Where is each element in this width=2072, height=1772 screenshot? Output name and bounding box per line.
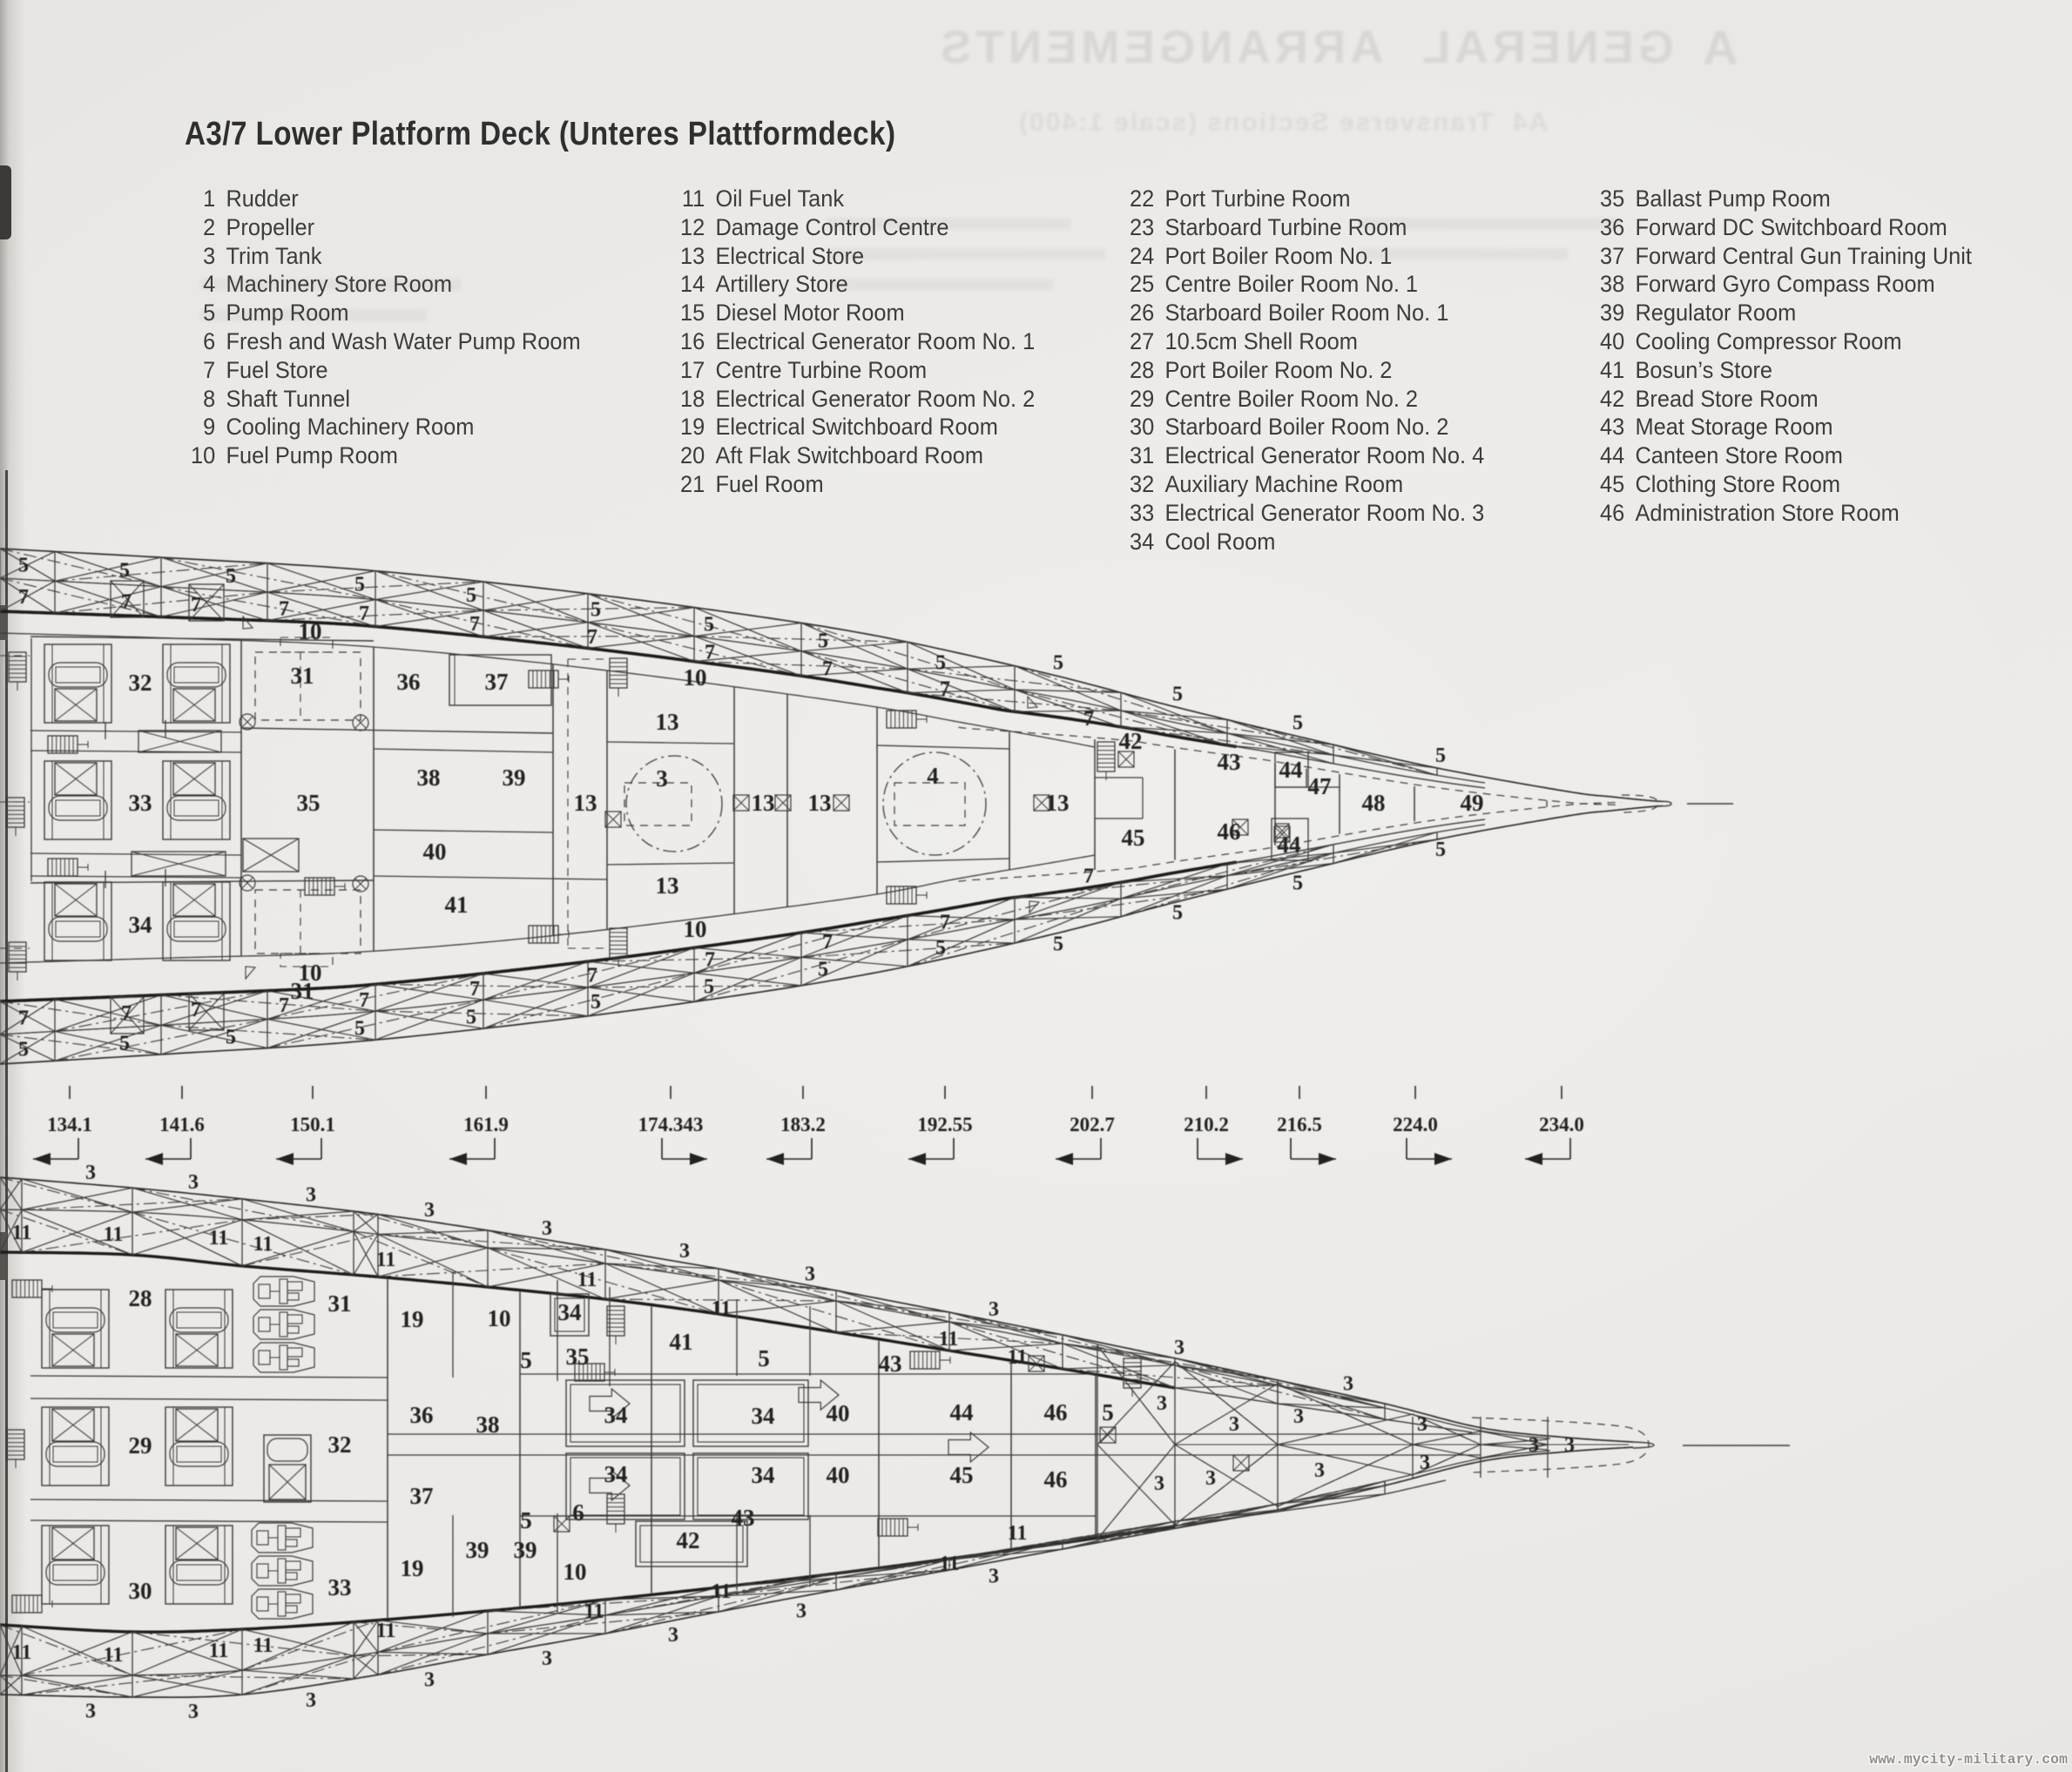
svg-text:10: 10 xyxy=(684,664,707,691)
svg-text:19: 19 xyxy=(401,1306,424,1332)
svg-text:11: 11 xyxy=(104,1223,124,1246)
svg-text:7: 7 xyxy=(940,912,950,934)
svg-text:37: 37 xyxy=(410,1483,434,1509)
svg-text:32: 32 xyxy=(328,1432,352,1458)
svg-text:202.7: 202.7 xyxy=(1070,1114,1115,1135)
svg-text:3: 3 xyxy=(1314,1459,1325,1482)
svg-text:3: 3 xyxy=(1417,1413,1427,1436)
svg-text:31: 31 xyxy=(291,663,314,689)
svg-text:3: 3 xyxy=(1154,1472,1164,1495)
svg-text:40: 40 xyxy=(827,1400,850,1426)
svg-text:7: 7 xyxy=(279,597,289,620)
svg-text:11: 11 xyxy=(253,1233,273,1256)
svg-text:11: 11 xyxy=(104,1644,124,1667)
svg-text:11: 11 xyxy=(376,1620,396,1642)
svg-text:3: 3 xyxy=(1420,1452,1430,1474)
svg-text:5: 5 xyxy=(466,584,476,607)
svg-text:3: 3 xyxy=(1157,1392,1167,1415)
svg-text:216.5: 216.5 xyxy=(1277,1114,1322,1135)
svg-text:28: 28 xyxy=(129,1285,152,1311)
svg-text:6: 6 xyxy=(572,1499,584,1526)
svg-text:43: 43 xyxy=(879,1351,902,1377)
svg-text:234.0: 234.0 xyxy=(1539,1114,1584,1135)
svg-text:47: 47 xyxy=(1308,773,1332,799)
svg-text:161.9: 161.9 xyxy=(463,1114,509,1135)
svg-text:34: 34 xyxy=(558,1299,582,1325)
svg-text:5: 5 xyxy=(18,1038,29,1061)
svg-text:5: 5 xyxy=(1435,839,1446,861)
svg-text:7: 7 xyxy=(279,994,289,1017)
svg-text:5: 5 xyxy=(18,554,29,576)
svg-text:5: 5 xyxy=(818,959,828,981)
svg-text:39: 39 xyxy=(514,1537,537,1563)
svg-text:41: 41 xyxy=(445,892,469,918)
svg-text:5: 5 xyxy=(1292,712,1303,735)
svg-text:11: 11 xyxy=(712,1297,732,1320)
svg-text:36: 36 xyxy=(410,1402,434,1428)
svg-text:7: 7 xyxy=(940,678,950,701)
svg-text:7: 7 xyxy=(587,964,597,987)
svg-text:11: 11 xyxy=(376,1249,396,1271)
svg-text:11: 11 xyxy=(1008,1346,1028,1369)
svg-text:35: 35 xyxy=(297,790,321,816)
svg-text:36: 36 xyxy=(397,669,421,695)
svg-text:42: 42 xyxy=(1119,728,1143,754)
svg-text:134.1: 134.1 xyxy=(47,1114,92,1135)
svg-text:7: 7 xyxy=(18,1007,29,1030)
svg-text:13: 13 xyxy=(656,709,679,735)
svg-text:11: 11 xyxy=(940,1553,960,1575)
svg-text:5: 5 xyxy=(520,1507,532,1533)
svg-text:10: 10 xyxy=(564,1559,587,1585)
svg-text:37: 37 xyxy=(485,669,509,695)
svg-text:5: 5 xyxy=(1053,933,1063,955)
svg-text:13: 13 xyxy=(574,790,597,816)
svg-text:7: 7 xyxy=(822,658,833,681)
svg-text:33: 33 xyxy=(328,1574,352,1600)
svg-text:7: 7 xyxy=(705,642,715,664)
svg-text:33: 33 xyxy=(129,790,152,816)
svg-text:3: 3 xyxy=(796,1600,807,1622)
svg-text:11: 11 xyxy=(209,1640,229,1662)
svg-text:3: 3 xyxy=(85,1701,96,1723)
svg-text:46: 46 xyxy=(1044,1399,1068,1425)
svg-text:5: 5 xyxy=(1435,745,1446,767)
svg-text:45: 45 xyxy=(950,1462,974,1488)
svg-text:5: 5 xyxy=(1172,684,1183,706)
svg-text:3: 3 xyxy=(542,1647,552,1670)
svg-text:10: 10 xyxy=(488,1305,511,1331)
svg-text:7: 7 xyxy=(191,999,201,1021)
svg-text:32: 32 xyxy=(129,670,152,696)
svg-text:5: 5 xyxy=(1102,1399,1114,1425)
svg-text:13: 13 xyxy=(752,790,775,816)
svg-text:44: 44 xyxy=(1278,832,1301,858)
svg-text:3: 3 xyxy=(188,1171,199,1194)
svg-text:3: 3 xyxy=(1343,1373,1353,1396)
svg-text:3: 3 xyxy=(1529,1434,1539,1457)
svg-text:39: 39 xyxy=(466,1537,489,1563)
svg-text:38: 38 xyxy=(476,1412,500,1438)
svg-text:5: 5 xyxy=(520,1347,532,1373)
svg-text:10: 10 xyxy=(299,618,322,644)
svg-text:43: 43 xyxy=(1218,749,1241,775)
svg-text:3: 3 xyxy=(668,1624,678,1647)
svg-text:3: 3 xyxy=(188,1701,199,1723)
svg-text:7: 7 xyxy=(359,603,369,625)
svg-text:34: 34 xyxy=(604,1402,628,1428)
svg-text:7: 7 xyxy=(587,626,597,649)
svg-text:210.2: 210.2 xyxy=(1184,1114,1229,1135)
svg-text:13: 13 xyxy=(656,873,679,899)
svg-text:3: 3 xyxy=(1229,1413,1239,1436)
svg-text:11: 11 xyxy=(12,1222,32,1244)
svg-text:192.55: 192.55 xyxy=(917,1114,972,1135)
svg-text:5: 5 xyxy=(226,1027,236,1049)
svg-text:4: 4 xyxy=(927,763,939,789)
svg-text:3: 3 xyxy=(1205,1467,1216,1490)
svg-text:5: 5 xyxy=(354,574,365,596)
svg-text:5: 5 xyxy=(704,613,714,636)
svg-text:41: 41 xyxy=(670,1329,693,1355)
svg-text:31: 31 xyxy=(328,1290,352,1317)
svg-text:5: 5 xyxy=(1053,652,1063,675)
svg-text:5: 5 xyxy=(354,1017,365,1040)
svg-text:10: 10 xyxy=(299,960,322,986)
svg-text:11: 11 xyxy=(1008,1522,1028,1545)
svg-text:44: 44 xyxy=(950,1399,974,1425)
svg-text:3: 3 xyxy=(805,1263,815,1285)
svg-text:38: 38 xyxy=(417,765,441,791)
svg-text:30: 30 xyxy=(129,1578,152,1604)
svg-text:11: 11 xyxy=(209,1227,229,1250)
svg-text:7: 7 xyxy=(121,1002,132,1025)
svg-text:5: 5 xyxy=(466,1006,476,1028)
svg-text:40: 40 xyxy=(423,839,447,865)
svg-text:5: 5 xyxy=(1172,902,1183,925)
svg-text:7: 7 xyxy=(359,989,369,1012)
svg-text:46: 46 xyxy=(1044,1466,1068,1492)
svg-text:5: 5 xyxy=(119,1033,130,1055)
svg-text:3: 3 xyxy=(306,1183,316,1206)
svg-text:7: 7 xyxy=(191,594,201,616)
svg-text:40: 40 xyxy=(827,1462,850,1488)
svg-text:3: 3 xyxy=(656,765,668,792)
svg-text:7: 7 xyxy=(469,978,480,1001)
svg-text:45: 45 xyxy=(1122,825,1145,851)
svg-text:13: 13 xyxy=(1046,790,1070,816)
svg-text:7: 7 xyxy=(1083,865,1094,887)
svg-text:34: 34 xyxy=(604,1461,628,1487)
svg-text:3: 3 xyxy=(1174,1337,1184,1359)
svg-text:7: 7 xyxy=(822,932,833,954)
svg-text:10: 10 xyxy=(684,916,707,942)
svg-text:3: 3 xyxy=(424,1199,435,1222)
svg-text:7: 7 xyxy=(18,586,29,609)
svg-text:5: 5 xyxy=(591,991,601,1014)
svg-text:5: 5 xyxy=(818,630,828,653)
svg-text:150.1: 150.1 xyxy=(290,1114,335,1135)
svg-text:42: 42 xyxy=(677,1527,700,1553)
svg-text:43: 43 xyxy=(732,1505,755,1531)
svg-text:5: 5 xyxy=(226,565,236,588)
svg-text:34: 34 xyxy=(752,1462,775,1488)
svg-text:29: 29 xyxy=(129,1432,152,1459)
svg-text:19: 19 xyxy=(401,1555,424,1581)
svg-text:44: 44 xyxy=(1279,757,1303,783)
svg-text:174.343: 174.343 xyxy=(638,1114,704,1135)
svg-text:3: 3 xyxy=(1564,1434,1575,1457)
svg-text:5: 5 xyxy=(758,1345,770,1371)
svg-text:11: 11 xyxy=(584,1600,604,1623)
svg-text:3: 3 xyxy=(1293,1405,1304,1428)
svg-text:3: 3 xyxy=(306,1689,316,1712)
svg-text:3: 3 xyxy=(542,1217,552,1240)
svg-text:3: 3 xyxy=(679,1240,690,1263)
svg-text:5: 5 xyxy=(591,598,601,621)
svg-text:49: 49 xyxy=(1461,790,1484,816)
svg-text:224.0: 224.0 xyxy=(1393,1114,1438,1135)
svg-text:48: 48 xyxy=(1362,790,1386,816)
svg-text:5: 5 xyxy=(704,976,714,999)
svg-text:13: 13 xyxy=(808,790,832,816)
svg-text:5: 5 xyxy=(1292,872,1303,894)
svg-text:39: 39 xyxy=(503,765,526,791)
svg-text:141.6: 141.6 xyxy=(159,1114,205,1135)
svg-text:7: 7 xyxy=(705,948,715,971)
svg-text:3: 3 xyxy=(85,1162,96,1184)
svg-text:11: 11 xyxy=(939,1328,959,1351)
svg-text:183.2: 183.2 xyxy=(780,1114,826,1135)
svg-text:5: 5 xyxy=(935,937,946,960)
svg-text:3: 3 xyxy=(989,1566,999,1588)
svg-text:34: 34 xyxy=(129,912,152,938)
svg-text:5: 5 xyxy=(935,651,946,674)
svg-text:11: 11 xyxy=(12,1641,32,1664)
svg-text:11: 11 xyxy=(253,1634,273,1657)
svg-text:7: 7 xyxy=(1083,708,1094,731)
svg-text:46: 46 xyxy=(1218,819,1241,845)
svg-text:35: 35 xyxy=(566,1344,590,1370)
svg-text:5: 5 xyxy=(119,560,130,583)
svg-text:34: 34 xyxy=(752,1403,775,1429)
svg-text:7: 7 xyxy=(469,613,480,636)
svg-text:11: 11 xyxy=(712,1580,732,1603)
svg-text:3: 3 xyxy=(989,1298,999,1321)
svg-text:11: 11 xyxy=(577,1269,597,1291)
svg-text:7: 7 xyxy=(121,590,132,613)
svg-text:3: 3 xyxy=(424,1669,435,1692)
